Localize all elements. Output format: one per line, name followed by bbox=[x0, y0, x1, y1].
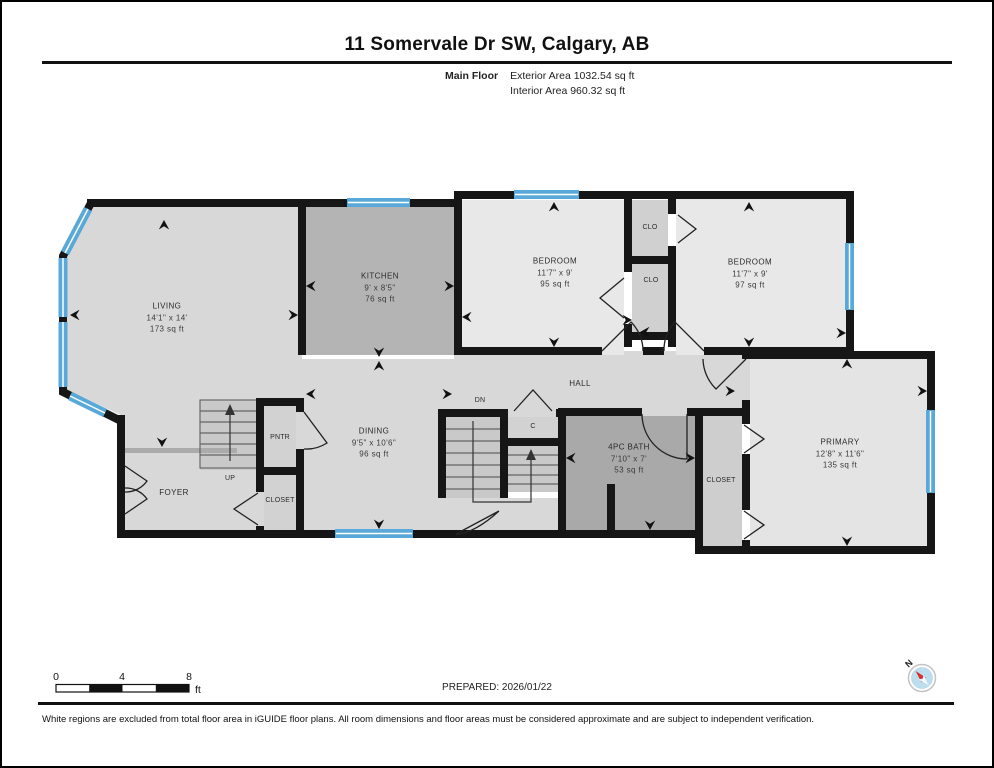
room-label-bedroom-left: BEDROOM11'7" x 9'95 sq ft bbox=[533, 256, 577, 291]
room-label-clo-top: CLO bbox=[643, 223, 658, 233]
floor-areas bbox=[63, 199, 927, 550]
disclaimer-text: White regions are excluded from total fl… bbox=[42, 714, 962, 725]
room-label-clo-bottom: CLO bbox=[644, 276, 659, 286]
room-label-dining: DINING9'5" x 10'6"96 sq ft bbox=[352, 426, 396, 461]
room-label-bedroom-right: BEDROOM11'7" x 9'97 sq ft bbox=[728, 257, 772, 292]
footer-divider bbox=[38, 702, 954, 705]
prepared-date: PREPARED: 2026/01/22 bbox=[2, 682, 992, 693]
stairs-up-label: UP bbox=[225, 474, 235, 484]
room-label-closet-primary: CLOSET bbox=[706, 476, 735, 486]
room-label-closet-foyer: CLOSET bbox=[265, 496, 294, 506]
room-label-closet-hall: C bbox=[530, 422, 535, 432]
room-label-bath: 4PC BATH7'10" x 7'53 sq ft bbox=[608, 442, 650, 477]
floorplan-page: 11 Somervale Dr SW, Calgary, AB Main Flo… bbox=[0, 0, 994, 768]
room-label-pantry: PNTR bbox=[270, 433, 290, 443]
room-label-primary: PRIMARY12'8" x 11'6"135 sq ft bbox=[816, 437, 864, 472]
floorplan-drawing: 0 4 8 ft N bbox=[2, 2, 994, 768]
stairs-dn-label: DN bbox=[475, 396, 486, 406]
room-label-foyer: FOYER bbox=[159, 487, 189, 499]
room-label-hall: HALL bbox=[569, 378, 591, 390]
room-label-kitchen: KITCHEN9' x 8'5"76 sq ft bbox=[361, 271, 399, 306]
room-label-living: LIVING14'1" x 14'173 sq ft bbox=[147, 301, 188, 336]
